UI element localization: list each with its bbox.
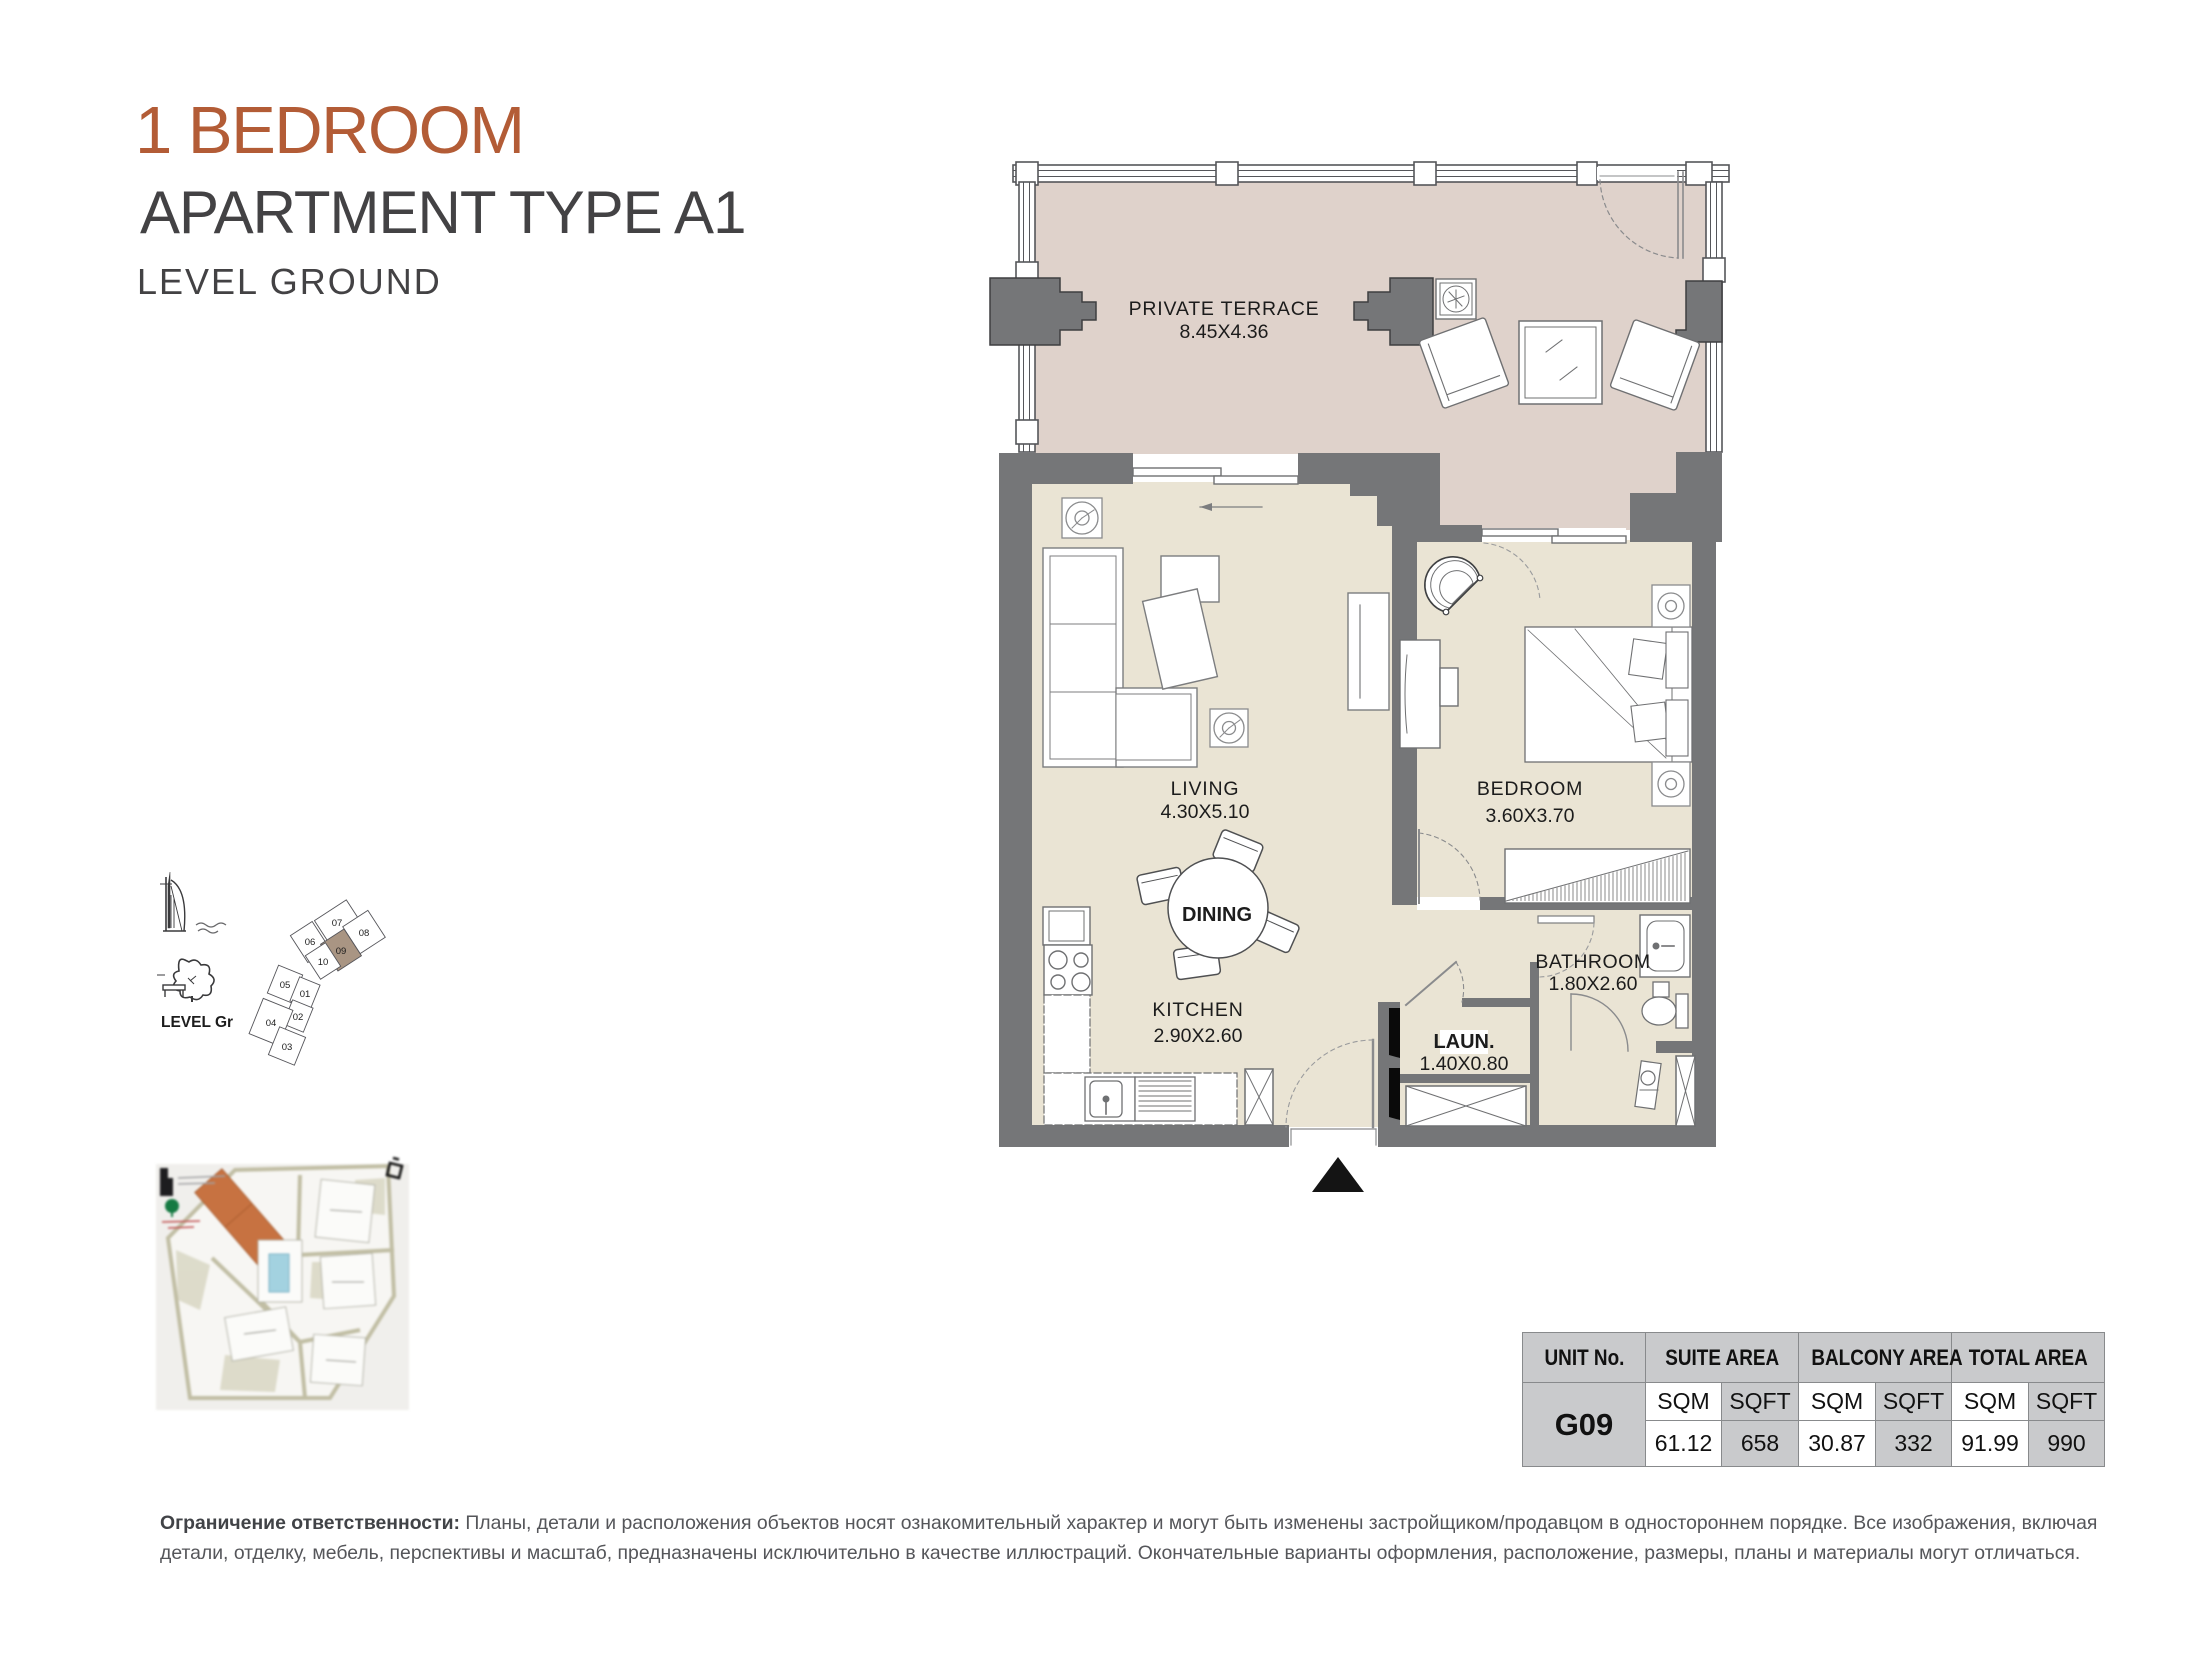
svg-text:BATHROOM: BATHROOM: [1535, 951, 1650, 973]
svg-text:03: 03: [282, 1042, 293, 1053]
svg-text:05: 05: [280, 980, 291, 991]
svg-text:2.90X2.60: 2.90X2.60: [1154, 1025, 1243, 1047]
svg-text:4.30X5.10: 4.30X5.10: [1161, 801, 1250, 823]
svg-text:KITCHEN: KITCHEN: [1152, 999, 1243, 1021]
svg-text:09: 09: [336, 946, 347, 957]
svg-text:8.45X4.36: 8.45X4.36: [1180, 321, 1269, 343]
svg-text:04: 04: [266, 1018, 277, 1029]
svg-text:10: 10: [318, 957, 329, 968]
svg-text:LEVEL Gr: LEVEL Gr: [161, 1014, 233, 1031]
svg-text:06: 06: [305, 937, 316, 948]
svg-text:1.40X0.80: 1.40X0.80: [1420, 1053, 1509, 1075]
svg-text:BEDROOM: BEDROOM: [1477, 778, 1583, 800]
svg-text:3.60X3.70: 3.60X3.70: [1486, 805, 1575, 827]
svg-text:07: 07: [332, 918, 343, 929]
svg-text:01: 01: [300, 989, 311, 1000]
svg-text:1.80X2.60: 1.80X2.60: [1549, 973, 1638, 995]
svg-text:02: 02: [293, 1012, 304, 1023]
svg-text:08: 08: [359, 928, 370, 939]
svg-text:LIVING: LIVING: [1171, 778, 1240, 800]
svg-text:PRIVATE TERRACE: PRIVATE TERRACE: [1129, 298, 1320, 320]
svg-text:LAUN.: LAUN.: [1433, 1031, 1494, 1053]
svg-text:DINING: DINING: [1182, 904, 1252, 926]
